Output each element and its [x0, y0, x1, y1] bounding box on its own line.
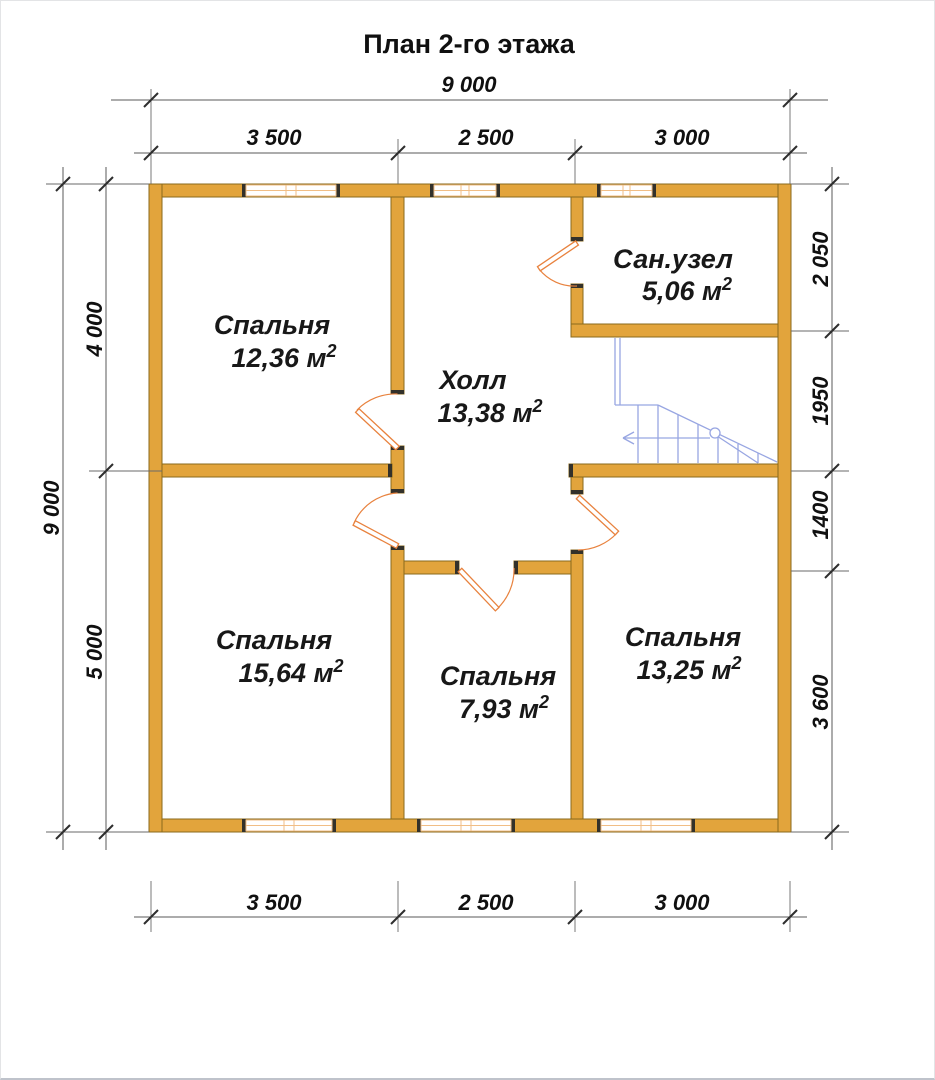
stairs-start-post [710, 428, 720, 438]
dim-top-seg3: 3 000 [654, 125, 710, 150]
room-labels: Спальня 12,36 м2 Холл 13,38 м2 Сан.узел … [214, 244, 742, 724]
dim-bottom-seg1: 3 500 [246, 890, 302, 915]
dimension-left: 9 000 4 000 5 000 [39, 167, 162, 850]
wall-interior-v2-upper [571, 197, 583, 241]
room-name-bedroom1: Спальня [214, 310, 330, 340]
room-area-bathroom: 5,06 м2 [642, 274, 732, 306]
room-name-bedroom3: Спальня [440, 661, 556, 691]
dim-top-seg2: 2 500 [457, 125, 514, 150]
wall-interior-v1-lower [391, 546, 404, 819]
door-bedroom1 [356, 394, 400, 450]
wall-bedroom3-top-left [404, 561, 459, 574]
dim-right-4: 3 600 [808, 674, 833, 730]
dim-bottom-seg3: 3 000 [654, 890, 710, 915]
dim-bottom-seg2: 2 500 [457, 890, 514, 915]
dim-left-lower: 5 000 [82, 624, 107, 680]
wall-interior-v1-jamb [391, 446, 404, 493]
dim-left-total: 9 000 [39, 480, 64, 536]
wall-interior-v1-upper [391, 197, 404, 394]
floor-plan-canvas: План 2-го этажа [1, 1, 935, 1080]
room-area-bedroom4: 13,25 м2 [636, 653, 741, 685]
door-bathroom [537, 241, 578, 286]
window [434, 185, 496, 196]
dim-top-total: 9 000 [441, 72, 497, 97]
room-area-bedroom2: 15,64 м2 [238, 656, 343, 688]
room-area-bedroom3: 7,93 м2 [459, 692, 549, 724]
wall-bathroom-bottom [571, 324, 778, 337]
room-name-hall: Холл [437, 365, 506, 395]
page-title: План 2-го этажа [363, 29, 576, 59]
wall-bedroom3-top-right [514, 561, 571, 574]
wall-caps [242, 184, 695, 832]
window [601, 820, 691, 831]
dimension-top: 9 000 3 500 2 500 3 000 [111, 72, 828, 184]
window [246, 820, 332, 831]
wall-interior-mid-left [162, 464, 392, 477]
wall-exterior-left [149, 184, 162, 832]
stairs-arrowhead [623, 432, 634, 438]
room-name-bathroom: Сан.узел [613, 244, 733, 274]
dim-right-2: 1950 [808, 376, 833, 426]
room-name-bedroom2: Спальня [216, 625, 332, 655]
door-bedroom2 [353, 493, 399, 548]
window [246, 185, 336, 196]
window [601, 185, 652, 196]
dim-left-upper: 4 000 [82, 301, 107, 358]
room-area-bedroom1: 12,36 м2 [231, 341, 336, 373]
wall-interior-v2-lower [571, 550, 583, 819]
dimension-right: 2 050 1950 1400 3 600 [791, 167, 849, 850]
room-name-bedroom4: Спальня [625, 622, 741, 652]
stairs [615, 338, 777, 463]
door-bedroom3 [458, 568, 514, 611]
door-bedroom4 [576, 495, 618, 550]
dim-top-seg1: 3 500 [246, 125, 302, 150]
room-area-hall: 13,38 м2 [437, 396, 542, 428]
dim-right-1: 2 050 [808, 231, 833, 288]
dim-right-3: 1400 [808, 490, 833, 540]
wall-exterior-right [778, 184, 791, 832]
wall-interior-mid-right [569, 464, 778, 477]
floor-plan-page: План 2-го этажа [0, 0, 935, 1080]
windows [246, 185, 691, 831]
dimension-bottom: 3 500 2 500 3 000 [134, 881, 807, 932]
window [421, 820, 511, 831]
